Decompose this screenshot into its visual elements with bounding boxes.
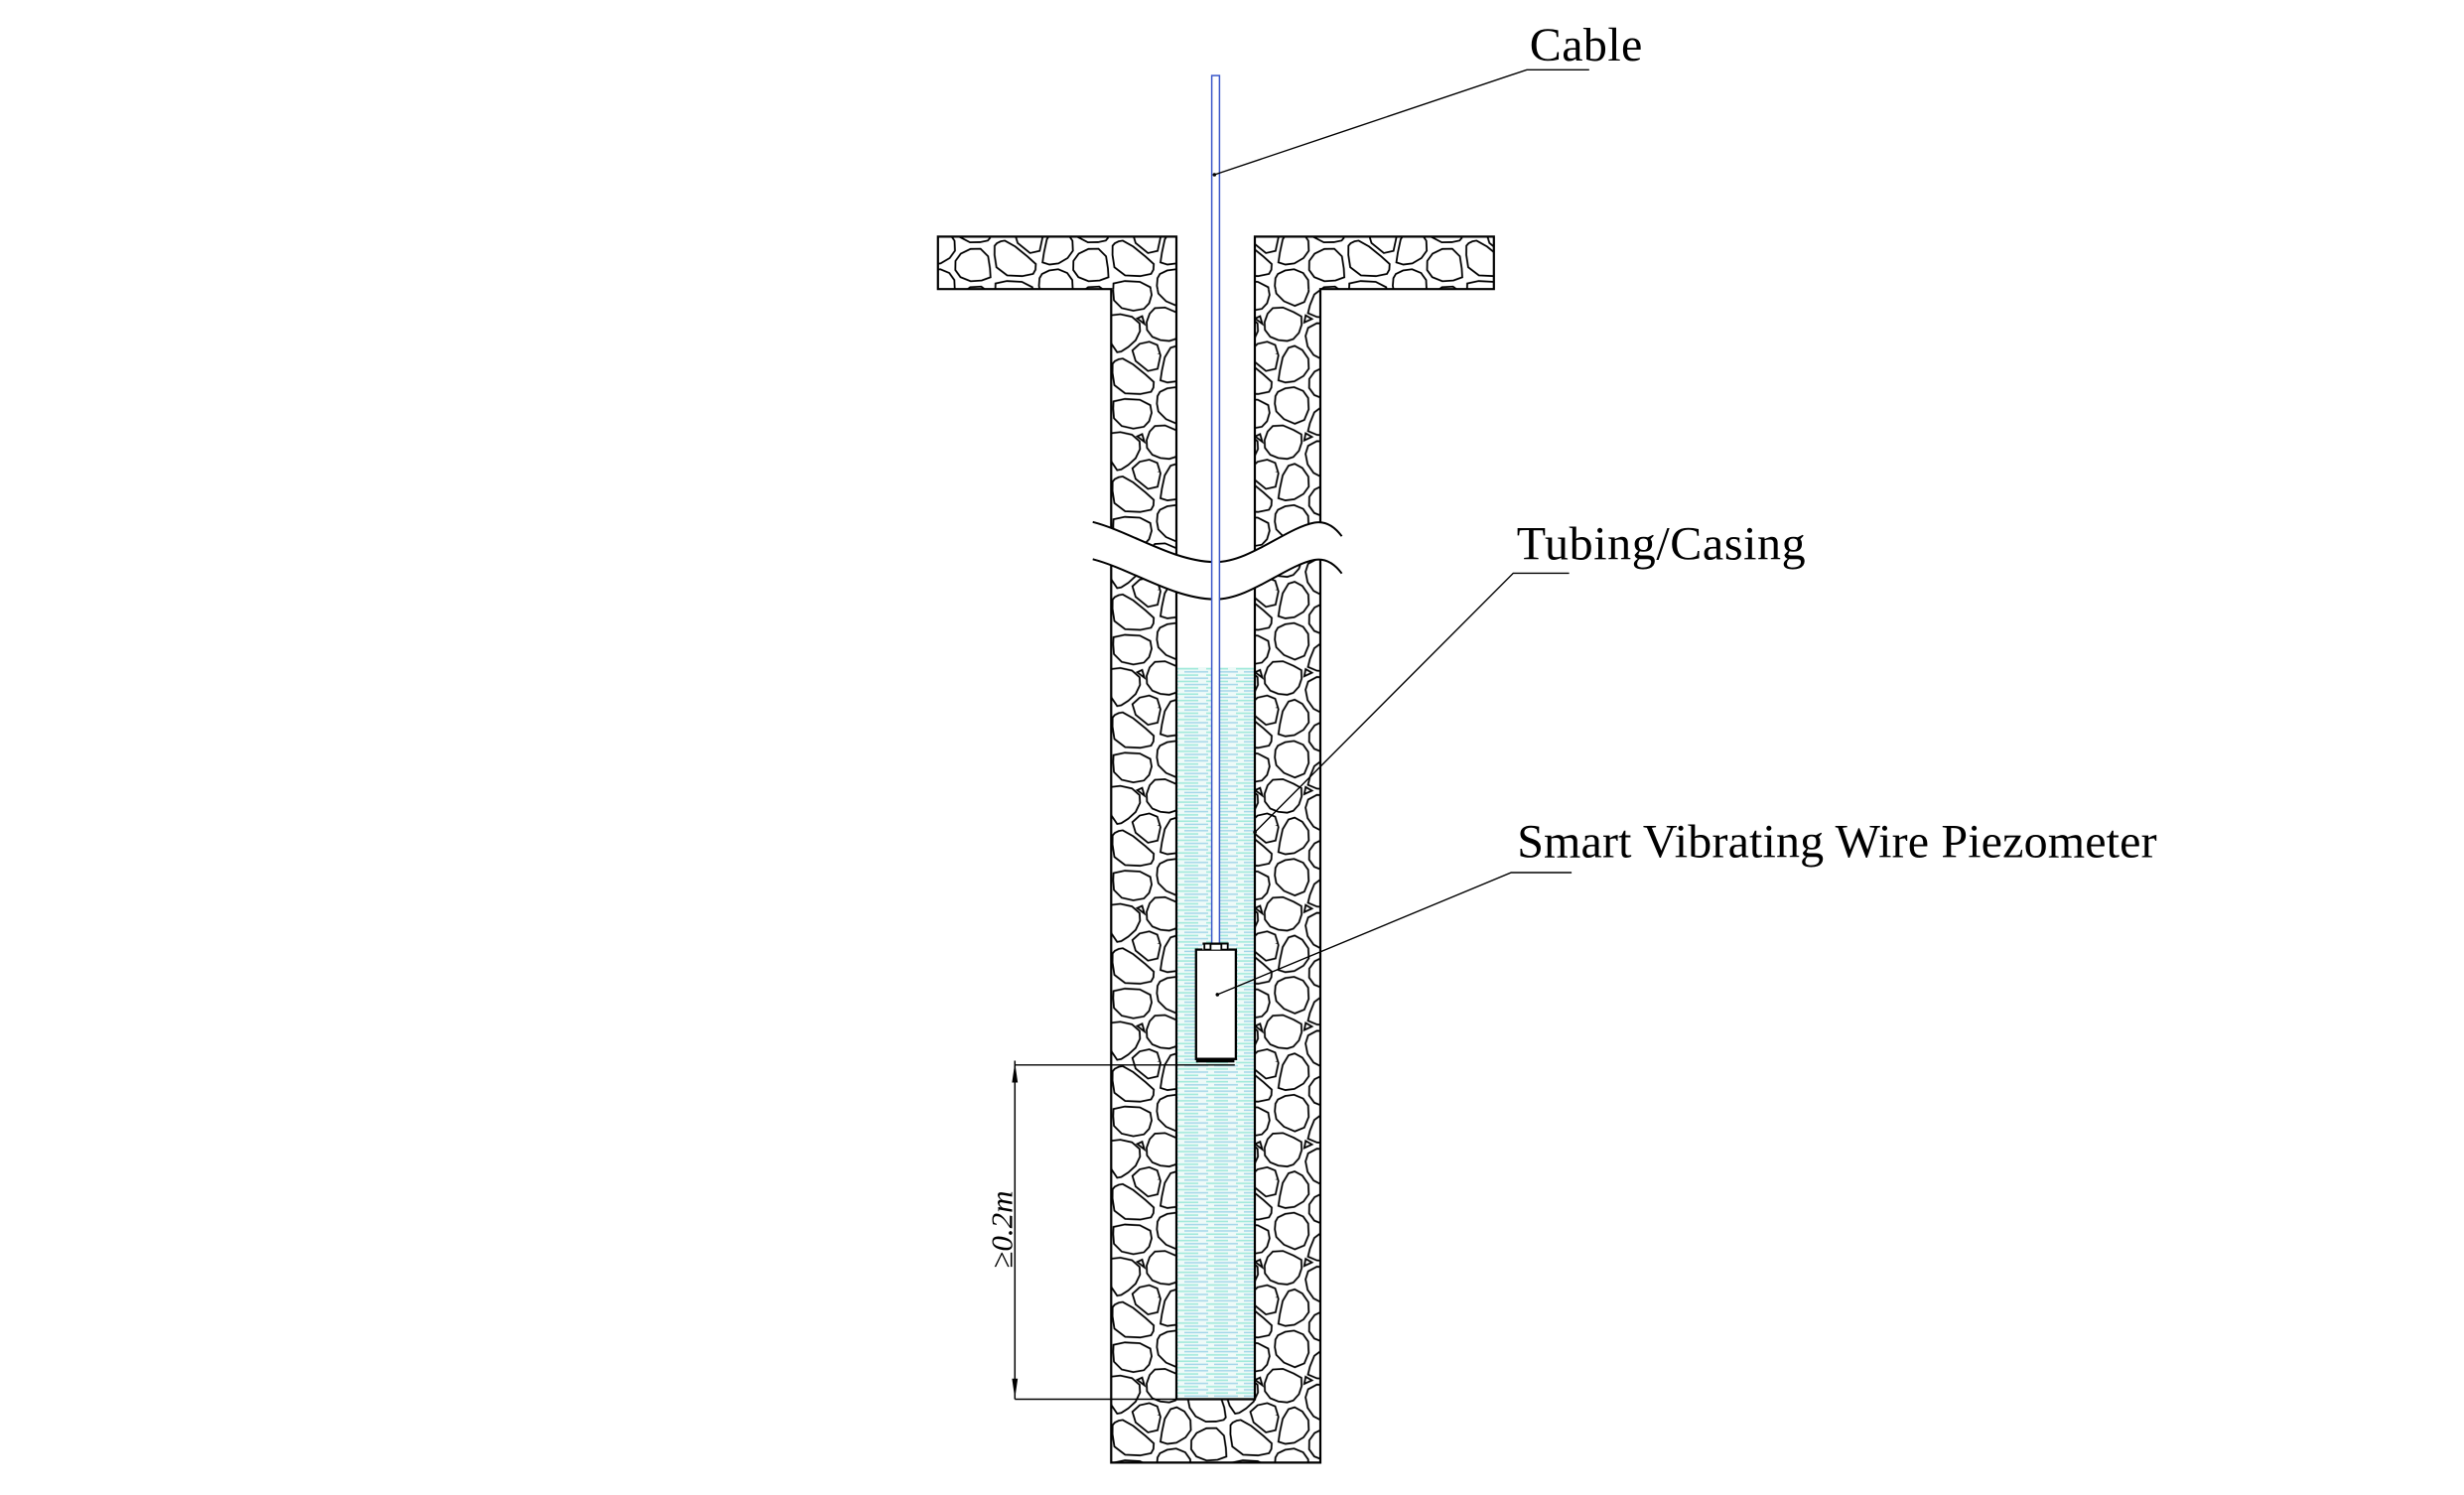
svg-text:Smart Vibrating Wire Piezomete: Smart Vibrating Wire Piezometer (1517, 815, 2157, 868)
svg-text:Tubing/Casing: Tubing/Casing (1517, 518, 1806, 571)
svg-text:Cable: Cable (1530, 19, 1643, 71)
svg-text:≥0.2m: ≥0.2m (985, 1190, 1020, 1268)
